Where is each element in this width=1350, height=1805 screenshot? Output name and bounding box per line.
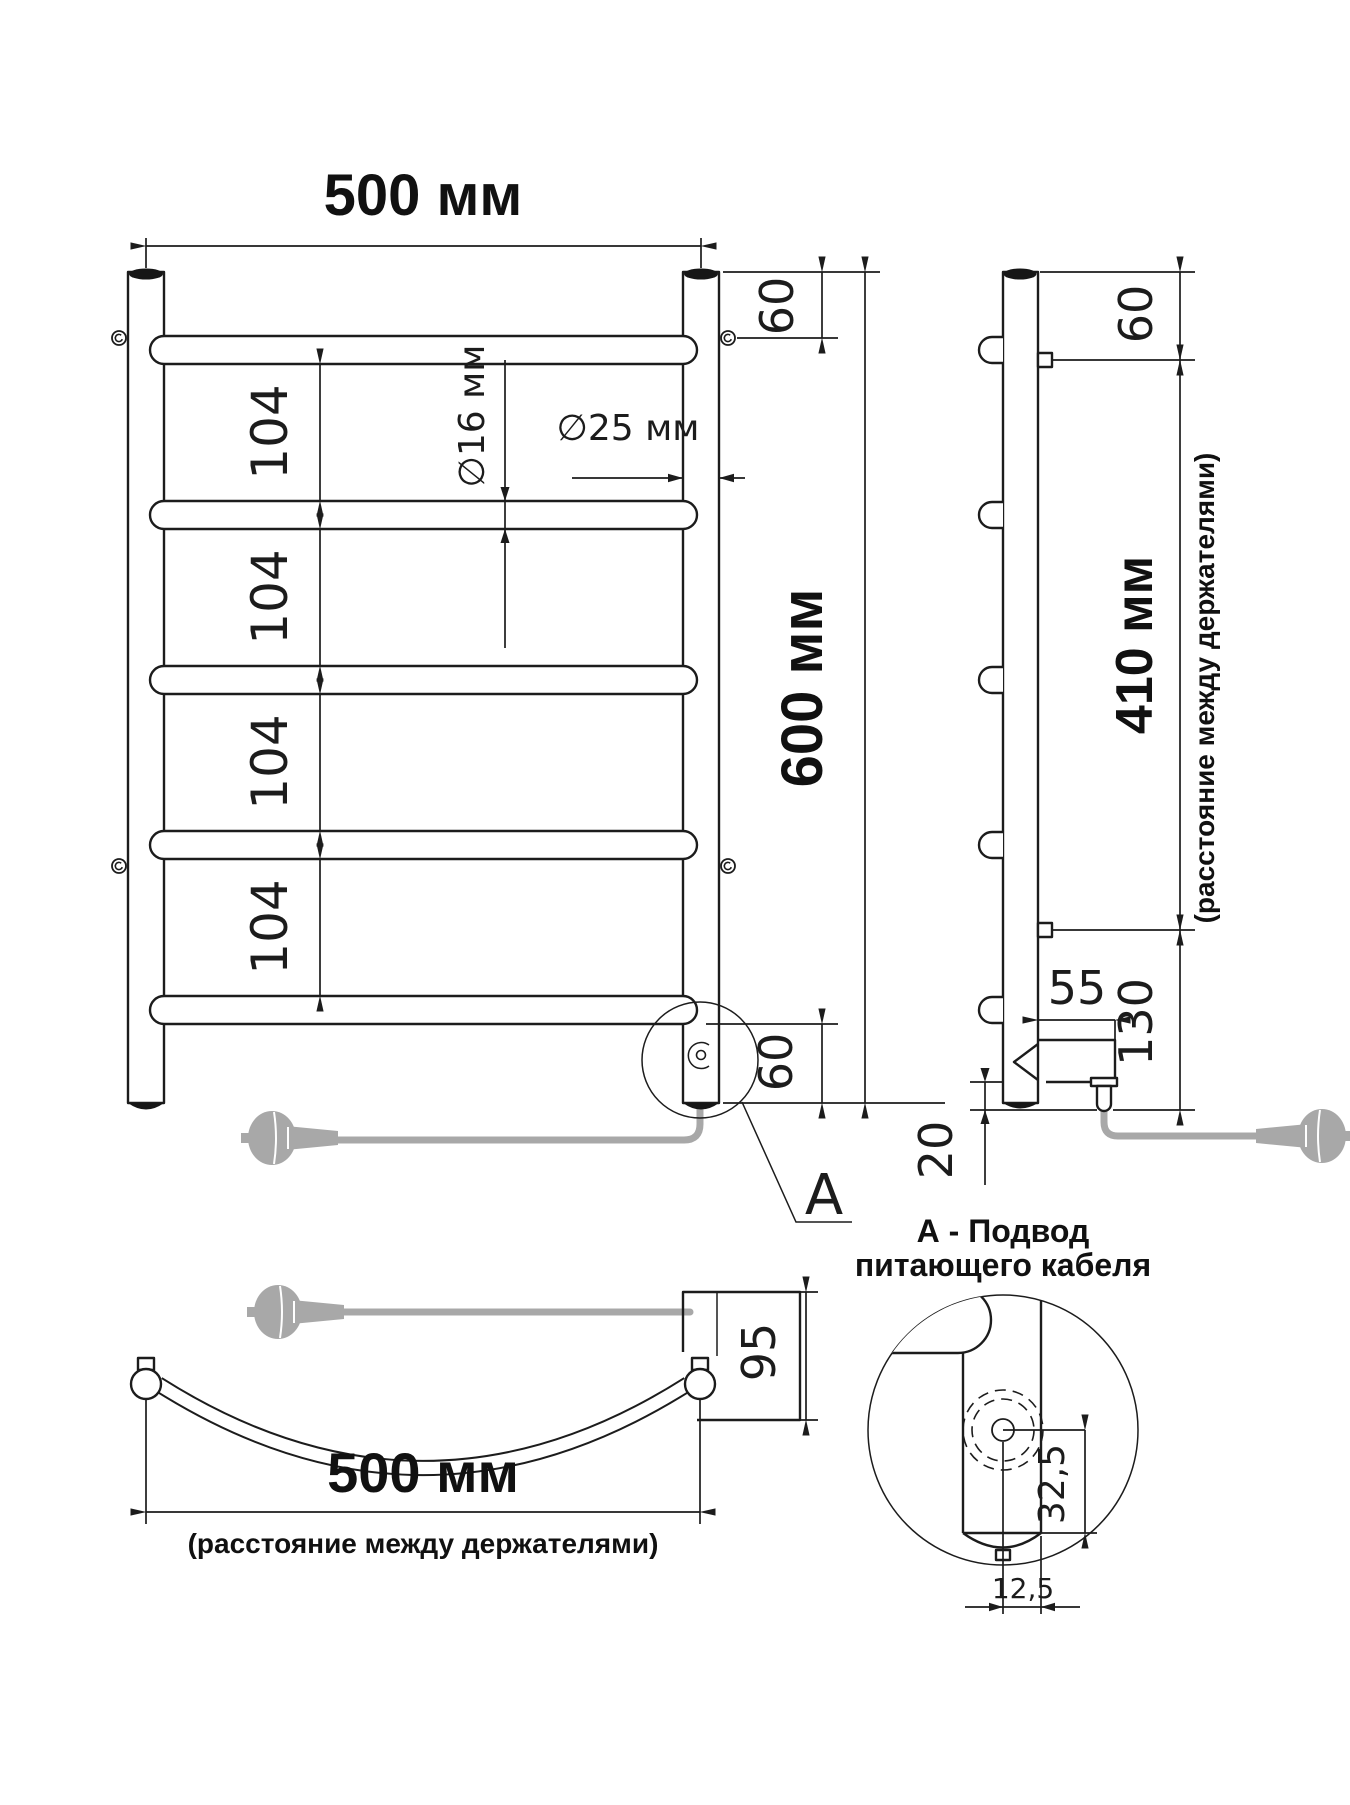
dim-label-axis-offset: 32,5 (1032, 1444, 1073, 1524)
dim-front-width: 500 мм (146, 163, 701, 268)
rung (150, 501, 697, 529)
element-housing (1038, 1040, 1115, 1082)
dim-label-post-diameter: ∅25 мм (557, 408, 700, 449)
dim-label-spacing-1: 104 (241, 384, 299, 479)
side-post (1003, 272, 1038, 1103)
dim-top-depth: 95 (732, 1292, 818, 1420)
front-view: А 500 мм 104 104 104 104 ∅16 мм (112, 163, 945, 1228)
dim-label-top-depth: 95 (732, 1323, 786, 1382)
dim-front-top-offset: 60 (737, 272, 838, 338)
rung (150, 666, 697, 694)
side-view: 60 410 мм (расстояние между держателями)… (909, 269, 1350, 1186)
power-plug-icon (247, 1285, 344, 1339)
dim-bracket-depth: 55 (1038, 961, 1115, 1040)
dim-label-front-width: 500 мм (324, 163, 523, 228)
dim-label-cable-offset: 12,5 (992, 1572, 1054, 1605)
heating-element (1097, 1086, 1111, 1111)
dim-label-bottom-length: 130 (1109, 978, 1163, 1066)
rung-stub (979, 832, 1003, 858)
rung-stub (979, 997, 1003, 1023)
dim-label-spacing-2: 104 (241, 549, 299, 644)
post-left-bottom-cap (128, 1103, 164, 1110)
dim-label-rung-diameter: ∅16 мм (452, 345, 493, 488)
dim-front-height: 600 мм (723, 272, 945, 1103)
power-plug-icon (1256, 1109, 1350, 1163)
dim-label-front-height: 600 мм (770, 589, 835, 788)
post-left-cap (129, 269, 163, 280)
wall-holder (1038, 923, 1052, 937)
top-view: 95 500 мм (расстояние между держателями) (131, 1285, 818, 1559)
detail-a-view: А - Подвод питающего кабеля 32,5 (855, 1213, 1151, 1614)
dim-note-top-width: (расстояние между держателями) (188, 1528, 659, 1559)
dim-label-element-offset: 20 (909, 1121, 963, 1180)
holder-post-right (685, 1369, 715, 1399)
dim-label-front-top-offset: 60 (750, 277, 804, 336)
wall-holder (1038, 353, 1052, 367)
detail-a-label: А (805, 1163, 843, 1228)
rung (150, 831, 697, 859)
dim-rung-diameter: ∅16 мм (452, 345, 510, 648)
mounting-screw-icon (721, 331, 735, 345)
rung-stub (979, 667, 1003, 693)
power-cable-side (1104, 1110, 1262, 1136)
dim-front-bottom-offset: 60 (706, 1024, 838, 1103)
dim-label-bracket-depth: 55 (1048, 961, 1107, 1015)
drawing-page: А 500 мм 104 104 104 104 ∅16 мм (0, 0, 1350, 1800)
rung-stub (979, 502, 1003, 528)
dim-label-front-bottom-offset: 60 (749, 1033, 803, 1092)
side-post-bottom-cap (1003, 1103, 1038, 1109)
dim-axis-offset: 32,5 (1003, 1430, 1097, 1533)
mounting-screw-icon (112, 859, 126, 873)
dim-note-holders-distance: (расстояние между держателями) (1189, 453, 1220, 924)
mounting-screw-icon (112, 331, 126, 345)
rung-stub (979, 337, 1003, 363)
dim-label-side-top-offset: 60 (1109, 285, 1163, 344)
rung (150, 996, 697, 1024)
detail-a-content (860, 1287, 1041, 1560)
dim-label-spacing-4: 104 (241, 879, 299, 974)
detail-title-line1: А - Подвод (917, 1213, 1090, 1249)
mounting-screw-icon (721, 859, 735, 873)
dim-label-holders-distance: 410 мм (1106, 556, 1164, 734)
power-plug-icon (241, 1111, 338, 1165)
side-post-cap (1004, 269, 1037, 280)
holder-post-left (131, 1369, 161, 1399)
detail-title-line2: питающего кабеля (855, 1247, 1151, 1283)
rung (150, 336, 697, 364)
dim-label-spacing-3: 104 (241, 714, 299, 809)
post-right-bottom-cap (683, 1103, 719, 1110)
dim-label-top-width: 500 мм (327, 1441, 519, 1504)
post-right-cap (684, 269, 718, 280)
power-cable-front (332, 1106, 700, 1140)
technical-drawing: А 500 мм 104 104 104 104 ∅16 мм (0, 0, 1350, 1800)
